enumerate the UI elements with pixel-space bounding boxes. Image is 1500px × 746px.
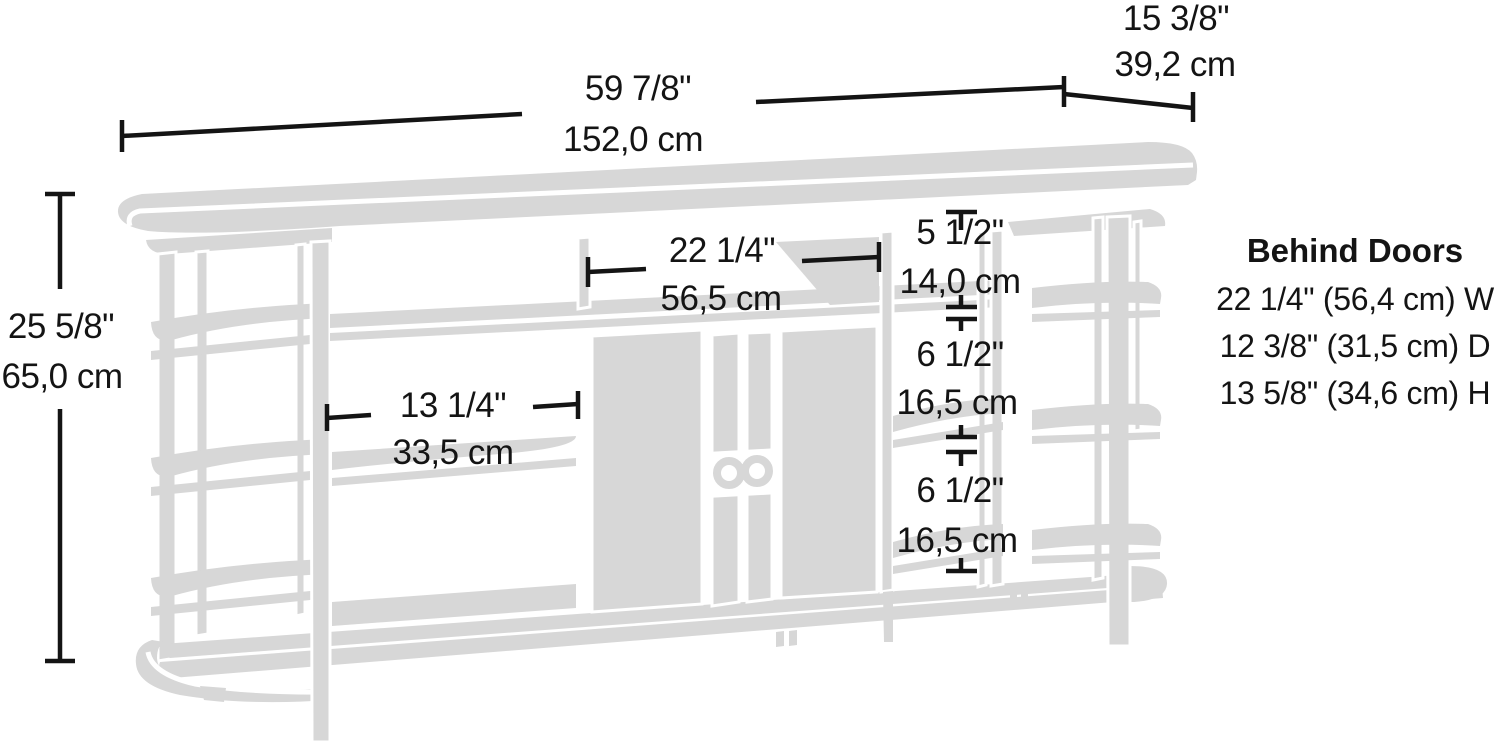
dimension-diagram: 15 3/8" 39,2 cm 59 7/8" 152,0 cm 25 5/8"… <box>0 0 1500 746</box>
foot-right-a <box>1010 589 1017 605</box>
door-left-panel <box>592 330 702 612</box>
right-top-cm-label: 14,0 cm <box>900 262 1021 301</box>
right-top-inches-label: 5 1/2" <box>916 213 1003 252</box>
width-cm-label: 152,0 cm <box>563 120 703 159</box>
left-opening-line-left <box>327 415 371 418</box>
carcass-left-wall-leg <box>311 241 330 742</box>
right-end-edge-sliver <box>1134 221 1141 431</box>
depth-cm-label: 39,2 cm <box>1115 45 1236 84</box>
right-middle-inches-label: 6 1/2" <box>916 335 1003 374</box>
right-middle-cm-label: 16,5 cm <box>897 383 1018 422</box>
right-bottom-cm-label: 16,5 cm <box>897 521 1018 560</box>
foot-right-b <box>1021 588 1028 604</box>
behind-doors-height-line: 13 5/8" (34,6 cm) H <box>1220 375 1491 411</box>
center-opening-line-left <box>588 269 646 272</box>
foot-left <box>200 686 226 702</box>
depth-dim-line <box>1064 94 1193 108</box>
width-dim-line-left <box>122 114 522 136</box>
behind-doors-depth-line: 12 3/8" (31,5 cm) D <box>1220 328 1491 364</box>
right-end-front-leg <box>1107 216 1130 646</box>
center-opening-cm-label: 56,5 cm <box>661 279 782 318</box>
height-inches-label: 25 5/8" <box>8 307 114 346</box>
behind-doors-width-line: 22 1/4" (56,4 cm) W <box>1216 281 1495 317</box>
diagram-canvas: 15 3/8" 39,2 cm 59 7/8" 152,0 cm 25 5/8"… <box>0 0 1500 746</box>
left-opening-inches-label: 13 1/4" <box>400 386 506 425</box>
behind-doors-title: Behind Doors <box>1247 232 1463 269</box>
foot-center-a <box>776 631 784 647</box>
center-opening-inches-label: 22 1/4" <box>669 231 775 270</box>
furniture-drawing <box>118 142 1197 742</box>
foot-center-b <box>789 630 797 646</box>
right-bottom-inches-label: 6 1/2" <box>916 471 1003 510</box>
width-dim-line-right <box>756 87 1064 102</box>
left-opening-cm-label: 33,5 cm <box>393 433 514 472</box>
height-cm-label: 65,0 cm <box>2 357 123 396</box>
left-opening-line-right <box>533 404 578 407</box>
center-right-divider-leg <box>883 591 893 642</box>
width-inches-label: 59 7/8" <box>585 69 691 108</box>
behind-doors-block: Behind Doors 22 1/4" (56,4 cm) W 12 3/8"… <box>1216 232 1495 411</box>
center-right-divider-wall <box>881 231 893 592</box>
depth-inches-label: 15 3/8" <box>1123 0 1229 38</box>
door-right-panel <box>781 326 877 598</box>
